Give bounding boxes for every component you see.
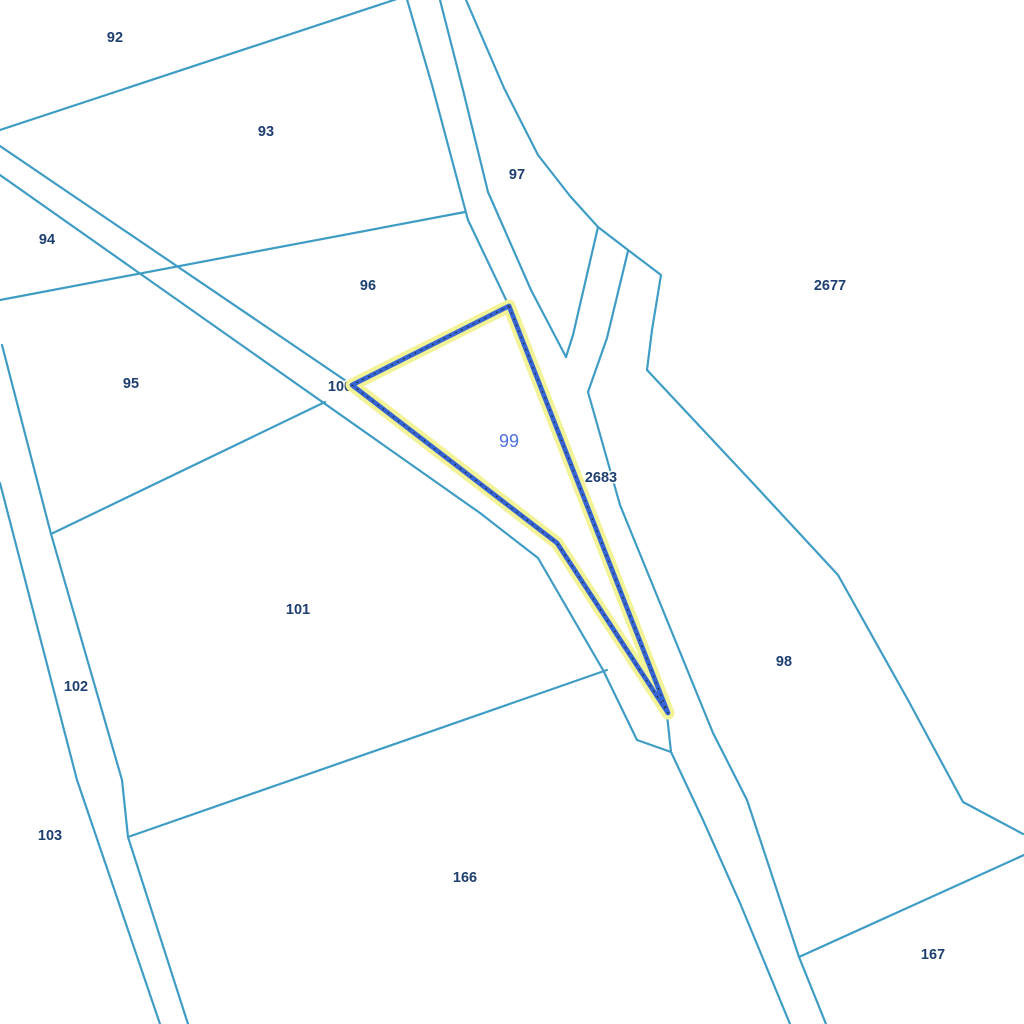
map-viewport: 9293949596971002677268310198102103166167… [0,0,1024,1024]
road102-west-edge [0,483,160,1024]
parcel-label-2683: 2683 [585,470,617,486]
parcel-label-96: 96 [360,278,376,294]
parcel-label-2677: 2677 [814,278,846,294]
road100-north-edge [0,146,352,385]
parcel-label-99-selected: 99 [499,431,519,451]
parcel-label-167: 167 [921,947,945,963]
road100-south-edge [0,175,790,1024]
parcel-label-92: 92 [107,30,123,46]
parcel-label-97: 97 [509,167,525,183]
parcel-label-101: 101 [286,602,310,618]
boundary-92-93 [0,0,406,130]
parcel-label-95: 95 [123,376,139,392]
boundary-101-166 [128,670,607,837]
parcel-label-98: 98 [776,654,792,670]
parcel-label-102: 102 [64,679,88,695]
boundary-95-101 [51,402,325,534]
parcel-label-166: 166 [453,870,477,886]
selected-parcel-layer [352,306,668,713]
selected-parcel-label-layer: 99 [499,431,519,451]
road102-east-edge [2,345,188,1024]
cadastral-map-canvas[interactable]: 9293949596971002677268310198102103166167… [0,0,1024,1024]
v-branch-east [566,227,598,357]
parcel99-tip-stub [667,715,671,752]
parcel-label-93: 93 [258,124,274,140]
parcel-label-103: 103 [38,828,62,844]
parcel-label-94: 94 [39,232,55,248]
boundary-98-167 [799,855,1024,957]
selected-parcel-99[interactable] [352,306,668,713]
road-west-edge [406,0,509,306]
